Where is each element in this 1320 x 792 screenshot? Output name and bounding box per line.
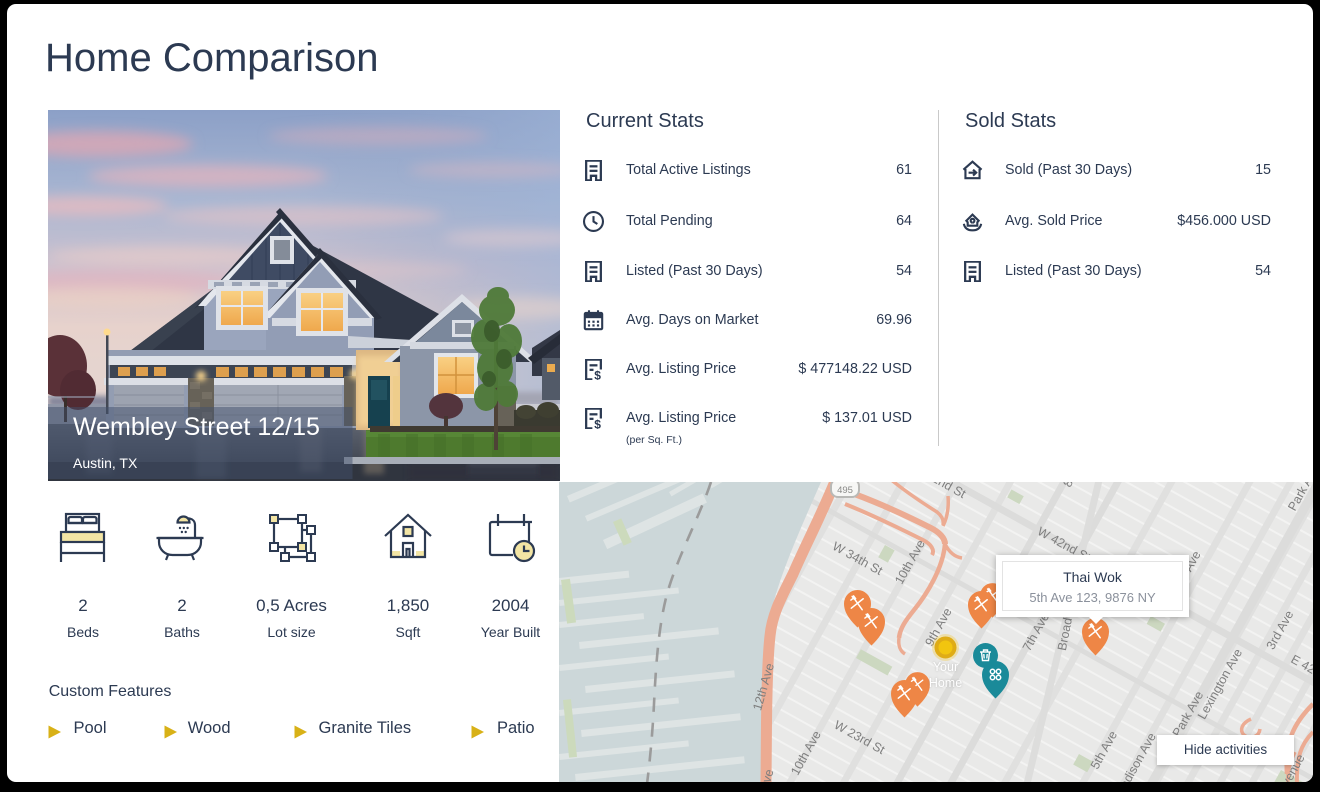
svg-text:495: 495 [837, 485, 853, 496]
svg-text:$: $ [594, 417, 601, 429]
svg-text:$: $ [594, 368, 601, 380]
